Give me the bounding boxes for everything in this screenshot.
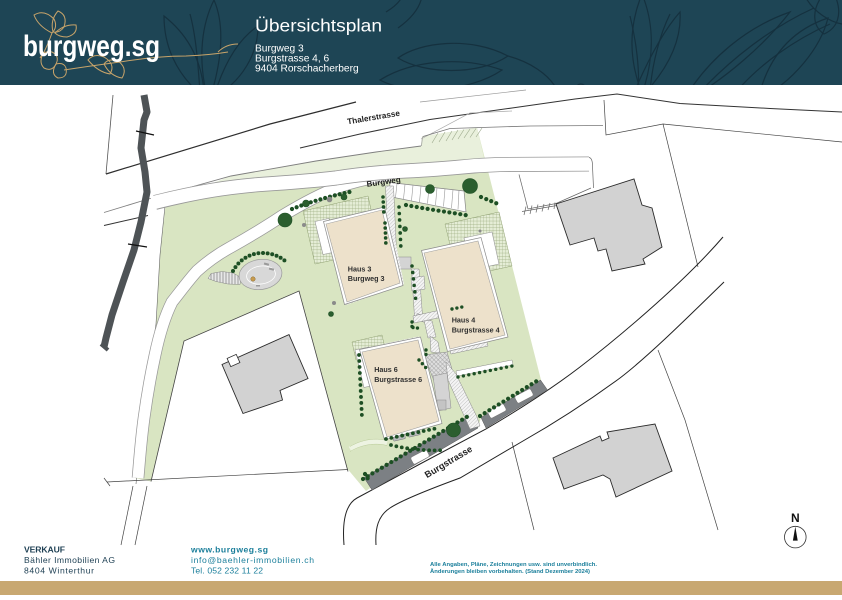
svg-text:Burgstrasse 6: Burgstrasse 6	[374, 375, 422, 384]
svg-text:Änderungen bleiben vorbehalten: Änderungen bleiben vorbehalten. (Stand D…	[430, 568, 590, 575]
svg-text:Tel. 052 232 11 22: Tel. 052 232 11 22	[191, 565, 263, 575]
svg-text:Burgweg 3: Burgweg 3	[348, 274, 385, 283]
svg-text:Alle Angaben, Pläne, Zeichnung: Alle Angaben, Pläne, Zeichnungen usw. si…	[430, 562, 597, 568]
svg-text:Haus 6: Haus 6	[374, 365, 398, 374]
svg-text:burgweg.sg: burgweg.sg	[23, 30, 160, 63]
svg-text:Haus 4: Haus 4	[452, 316, 476, 325]
svg-text:9404 Rorschacherberg: 9404 Rorschacherberg	[255, 64, 359, 75]
svg-text:Haus 3: Haus 3	[348, 264, 372, 273]
svg-text:info@baehler-immobilien.ch: info@baehler-immobilien.ch	[191, 555, 314, 565]
svg-text:Bähler Immobilien AG: Bähler Immobilien AG	[24, 555, 115, 565]
svg-text:VERKAUF: VERKAUF	[24, 544, 65, 554]
svg-text:Übersichtsplan: Übersichtsplan	[255, 16, 382, 36]
svg-text:www.burgweg.sg: www.burgweg.sg	[190, 544, 268, 554]
svg-text:8404 Winterthur: 8404 Winterthur	[24, 565, 94, 575]
svg-text:N: N	[791, 511, 800, 525]
svg-text:Burgstrasse 4: Burgstrasse 4	[452, 326, 500, 335]
